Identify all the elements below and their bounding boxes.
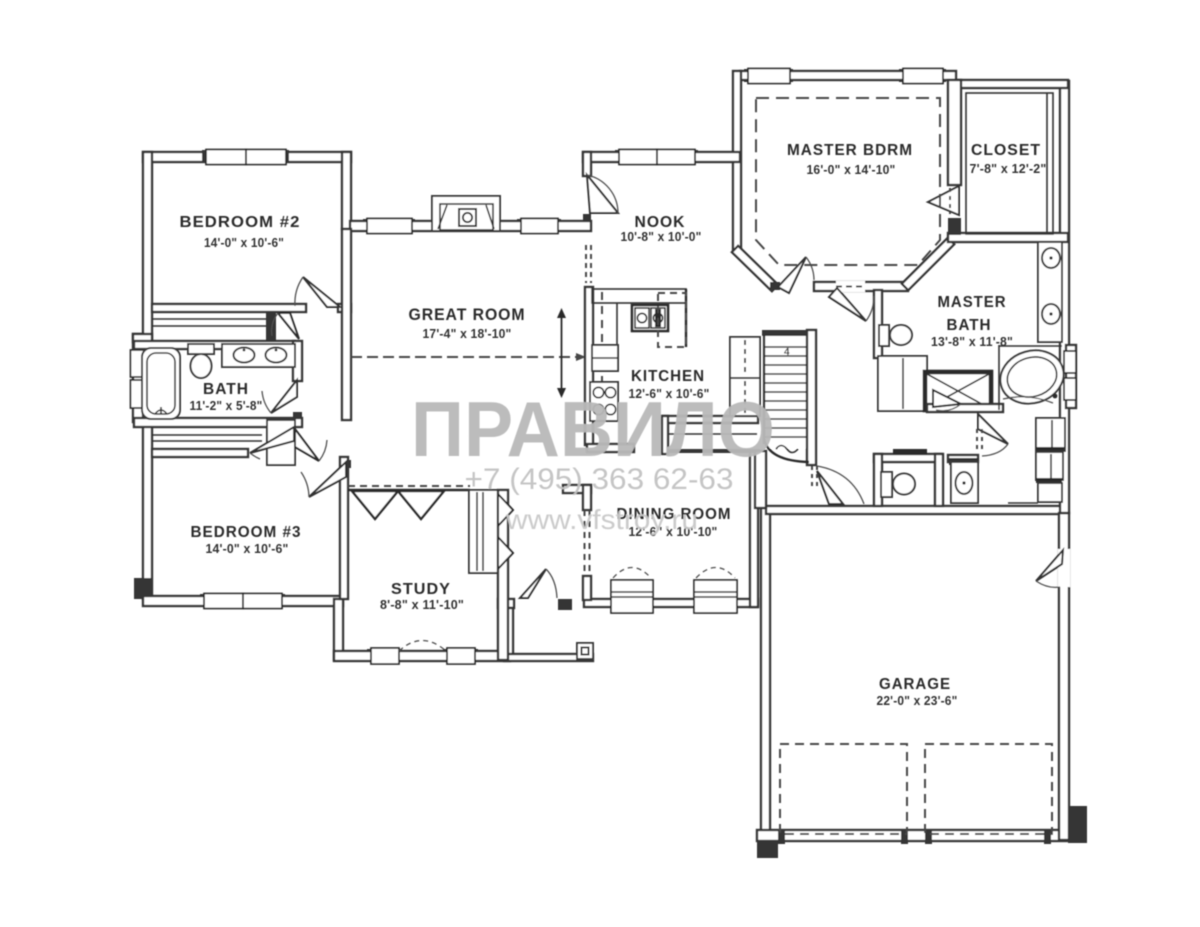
- svg-text:BEDROOM #3: BEDROOM #3: [191, 524, 302, 541]
- svg-text:BATH: BATH: [947, 317, 992, 334]
- svg-text:14'-0" x 10'-6": 14'-0" x 10'-6": [204, 236, 284, 250]
- svg-text:17'-4" x 18'-10": 17'-4" x 18'-10": [423, 327, 512, 341]
- svg-text:7'-8" x 12'-2": 7'-8" x 12'-2": [970, 162, 1047, 176]
- svg-text:NOOK: NOOK: [635, 214, 686, 231]
- svg-text:13'-8" x 11'-8": 13'-8" x 11'-8": [931, 335, 1013, 349]
- svg-text:+7 (495) 363 62-63: +7 (495) 363 62-63: [465, 463, 734, 496]
- svg-text:BEDROOM #2: BEDROOM #2: [180, 214, 301, 231]
- svg-text:KITCHEN: KITCHEN: [631, 368, 705, 385]
- svg-text:11'-2" x 5'-8": 11'-2" x 5'-8": [190, 399, 263, 413]
- svg-text:ПРАВИЛО: ПРАВИЛО: [411, 385, 775, 473]
- svg-text:www.vfstroy.ru: www.vfstroy.ru: [505, 504, 698, 535]
- svg-text:16'-0" x 14'-10": 16'-0" x 14'-10": [807, 163, 896, 177]
- svg-text:STUDY: STUDY: [391, 581, 451, 598]
- svg-text:8'-8" x 11'-10": 8'-8" x 11'-10": [380, 598, 464, 612]
- svg-text:MASTER: MASTER: [938, 294, 1007, 311]
- svg-text:22'-0" x 23'-6": 22'-0" x 23'-6": [877, 694, 958, 708]
- svg-text:GARAGE: GARAGE: [879, 676, 951, 693]
- svg-text:14'-0" x 10'-6": 14'-0" x 10'-6": [206, 542, 289, 556]
- svg-text:BATH: BATH: [203, 381, 249, 398]
- svg-text:GREAT ROOM: GREAT ROOM: [409, 305, 526, 324]
- svg-text:MASTER BDRM: MASTER BDRM: [787, 142, 913, 159]
- svg-text:CLOSET: CLOSET: [971, 142, 1041, 159]
- svg-text:10'-8" x 10'-0": 10'-8" x 10'-0": [621, 230, 702, 244]
- svg-text:4: 4: [784, 347, 790, 358]
